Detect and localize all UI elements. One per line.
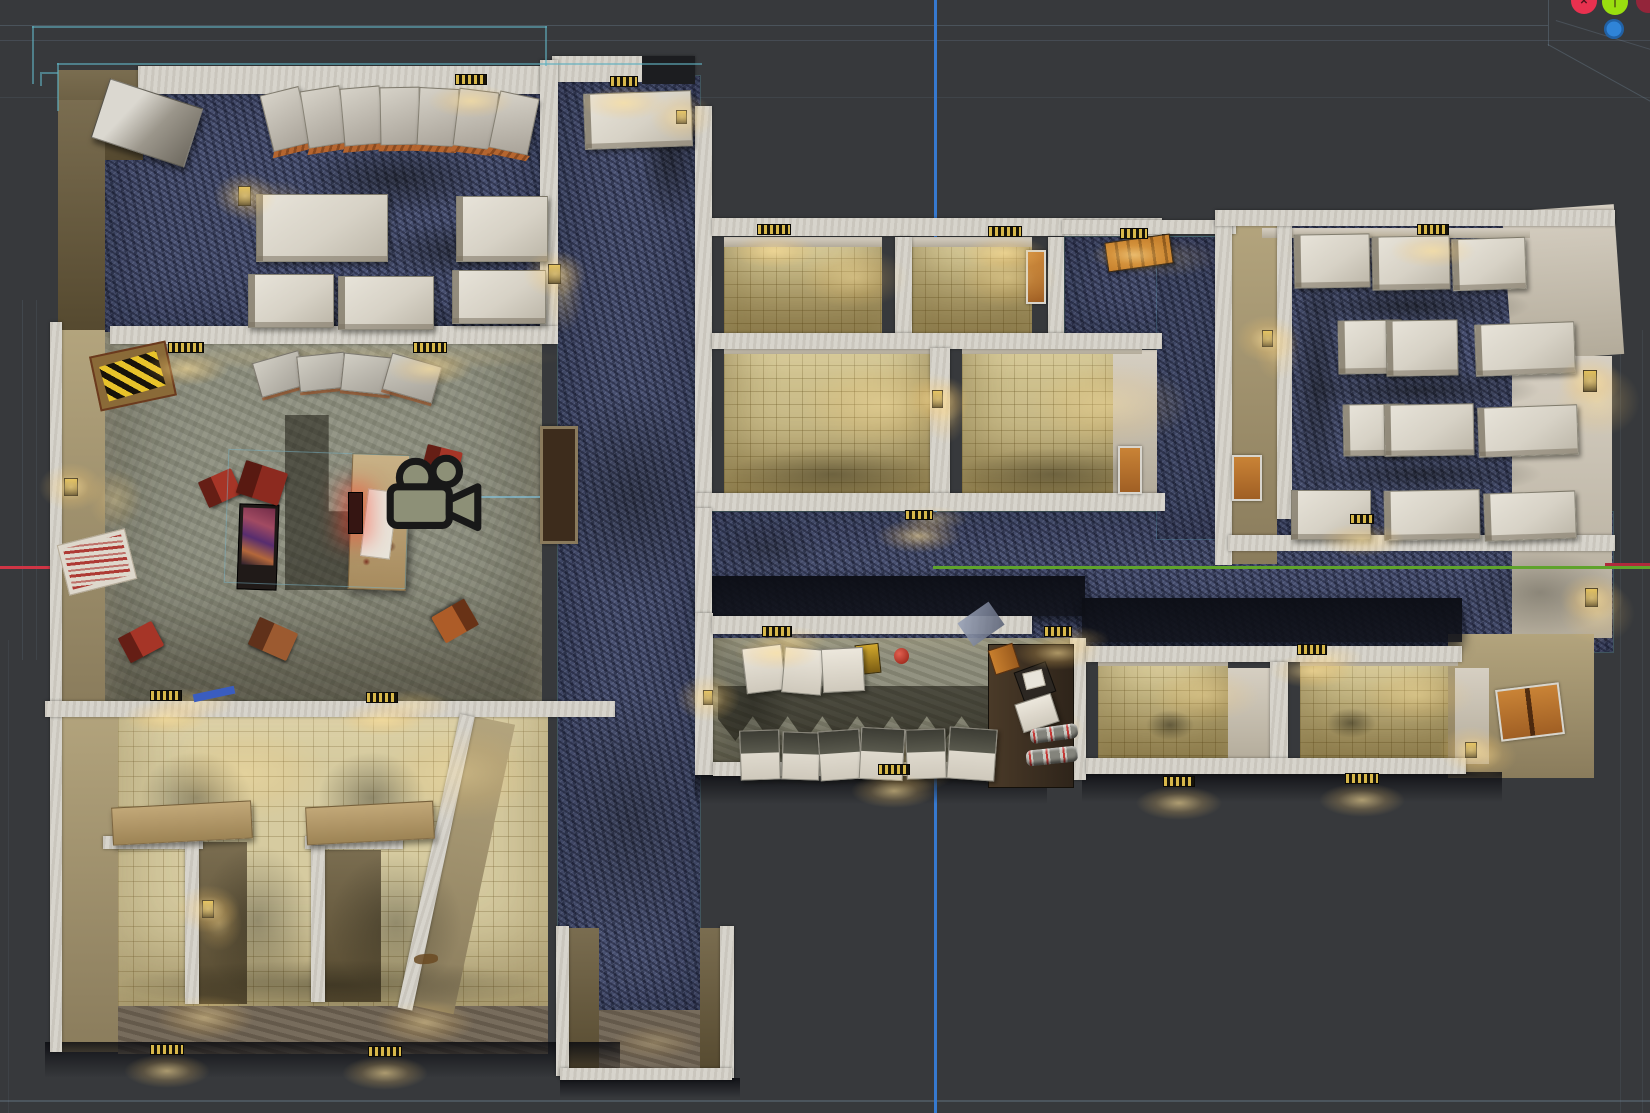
folded-bunk[interactable] (340, 85, 385, 146)
shower-bench-table[interactable] (305, 801, 435, 846)
x-axis-grid-line-red-left (0, 566, 57, 569)
ceiling-lamp[interactable] (1044, 626, 1072, 637)
ceiling-lamp[interactable] (757, 224, 791, 235)
shadow (712, 515, 822, 580)
selection-wireframe (40, 72, 58, 74)
wall[interactable] (695, 508, 712, 618)
grid-line (36, 300, 37, 660)
gizmo-x-axis-ball[interactable]: ✕ (1571, 0, 1597, 14)
grid-line (8, 640, 9, 1113)
wall[interactable] (695, 106, 712, 508)
wall-lamp[interactable] (202, 900, 214, 918)
ceiling-lamp[interactable] (1163, 776, 1195, 787)
x-axis-grid-line-green (933, 566, 1650, 569)
wall-lamp[interactable] (676, 110, 687, 124)
ceiling-lamp[interactable] (1417, 224, 1449, 235)
wall[interactable] (556, 926, 569, 1076)
light-glow (155, 995, 255, 1040)
selection-wireframe (32, 26, 34, 84)
red-object[interactable] (894, 648, 909, 664)
light-glow (1150, 668, 1260, 723)
wall[interactable] (311, 846, 325, 1002)
light-glow (1360, 668, 1475, 723)
gizmo-x-label: ✕ (1580, 0, 1588, 7)
gizmo-negative-axis-ball[interactable] (1636, 0, 1650, 13)
ceiling-lamp[interactable] (168, 342, 204, 353)
wall[interactable] (720, 926, 734, 1078)
selection-wireframe (32, 26, 547, 28)
corridor-shadow-strip (1082, 598, 1462, 642)
washing-machine[interactable] (946, 726, 998, 781)
bunk-bed[interactable] (1477, 404, 1579, 457)
ceiling-lamp[interactable] (610, 76, 638, 87)
bunk-bed[interactable] (1384, 403, 1475, 457)
bunk-bed[interactable] (338, 276, 434, 330)
shower-bench-table[interactable] (111, 800, 253, 845)
ceiling-lamp[interactable] (762, 626, 792, 637)
ceiling-lamp[interactable] (150, 690, 182, 701)
washing-machine[interactable] (821, 647, 865, 693)
washing-machine[interactable] (781, 731, 821, 780)
ceiling-lamp[interactable] (455, 74, 487, 85)
light-glow (610, 1025, 700, 1060)
ceiling-lamp[interactable] (988, 226, 1022, 237)
ceiling-lamp[interactable] (1345, 773, 1379, 784)
wall-face[interactable] (1232, 224, 1277, 564)
grid-line (1548, 0, 1549, 46)
wall-lamp[interactable] (703, 690, 713, 705)
ceiling-lamp[interactable] (150, 1044, 184, 1055)
wall-lamp[interactable] (64, 478, 78, 496)
selection-wireframe (545, 26, 547, 66)
wall[interactable] (50, 322, 62, 1052)
grid-line (1642, 330, 1643, 1113)
ceiling-lamp[interactable] (878, 764, 910, 775)
wall[interactable] (712, 333, 1162, 349)
grid-line (1548, 44, 1650, 109)
camera-gizmo-icon[interactable] (378, 452, 490, 544)
light-glow (375, 1000, 475, 1045)
viewport-3d-scene[interactable]: ✕ ∣ (0, 0, 1650, 1113)
shadow (560, 390, 705, 600)
grid-line (22, 300, 23, 660)
grid-line (0, 40, 1650, 41)
ceiling-lamp[interactable] (1297, 644, 1327, 655)
door-orange[interactable] (1232, 455, 1262, 501)
gizmo-y-axis-ball[interactable]: ∣ (1602, 0, 1628, 15)
wall[interactable] (560, 1068, 732, 1080)
edge-shadow (560, 1078, 740, 1098)
door-orange[interactable] (1495, 682, 1565, 741)
wall[interactable] (1086, 758, 1466, 774)
selection-wireframe (57, 63, 59, 111)
washing-machine[interactable] (739, 729, 781, 780)
wall-lamp[interactable] (1465, 742, 1477, 758)
door-orange[interactable] (1118, 446, 1142, 494)
gizmo-y-label: ∣ (1613, 0, 1618, 8)
ceiling-lamp[interactable] (1120, 228, 1148, 239)
shadow (560, 690, 702, 950)
wall-lamp[interactable] (1262, 330, 1273, 347)
grid-line (1556, 20, 1650, 50)
wall-face[interactable] (700, 928, 722, 1076)
selection-wireframe (57, 63, 702, 65)
wall-lamp[interactable] (932, 390, 943, 408)
wall-face[interactable] (62, 707, 118, 1052)
wall[interactable] (1062, 220, 1236, 234)
folded-bunk[interactable] (379, 87, 420, 146)
ceiling-lamp[interactable] (366, 692, 398, 703)
ceiling-lamp[interactable] (368, 1046, 402, 1057)
wall-lamp[interactable] (1583, 370, 1597, 392)
wall[interactable] (1215, 210, 1615, 226)
bunk-bed[interactable] (1294, 233, 1371, 288)
doorway-opening[interactable] (642, 56, 695, 84)
selection-wireframe (40, 74, 42, 86)
bunk-bed[interactable] (1483, 490, 1577, 541)
corridor-shadow-strip (700, 576, 1085, 616)
ceiling-lamp[interactable] (1350, 514, 1374, 524)
washing-machine[interactable] (905, 728, 947, 779)
wall-lamp[interactable] (1585, 588, 1598, 607)
wall-lamp[interactable] (238, 186, 251, 206)
gizmo-z-axis-ball[interactable] (1604, 19, 1624, 39)
x-axis-grid-line-red-right (1605, 563, 1650, 566)
light-glow (1030, 362, 1190, 447)
grid-line (0, 1100, 1650, 1102)
ceiling-lamp[interactable] (413, 342, 447, 353)
bunk-bed[interactable] (248, 274, 334, 328)
ceiling-lamp[interactable] (905, 510, 933, 520)
wall-lamp[interactable] (548, 264, 561, 284)
wall-board[interactable] (540, 426, 578, 544)
bunk-bed[interactable] (1386, 319, 1459, 376)
